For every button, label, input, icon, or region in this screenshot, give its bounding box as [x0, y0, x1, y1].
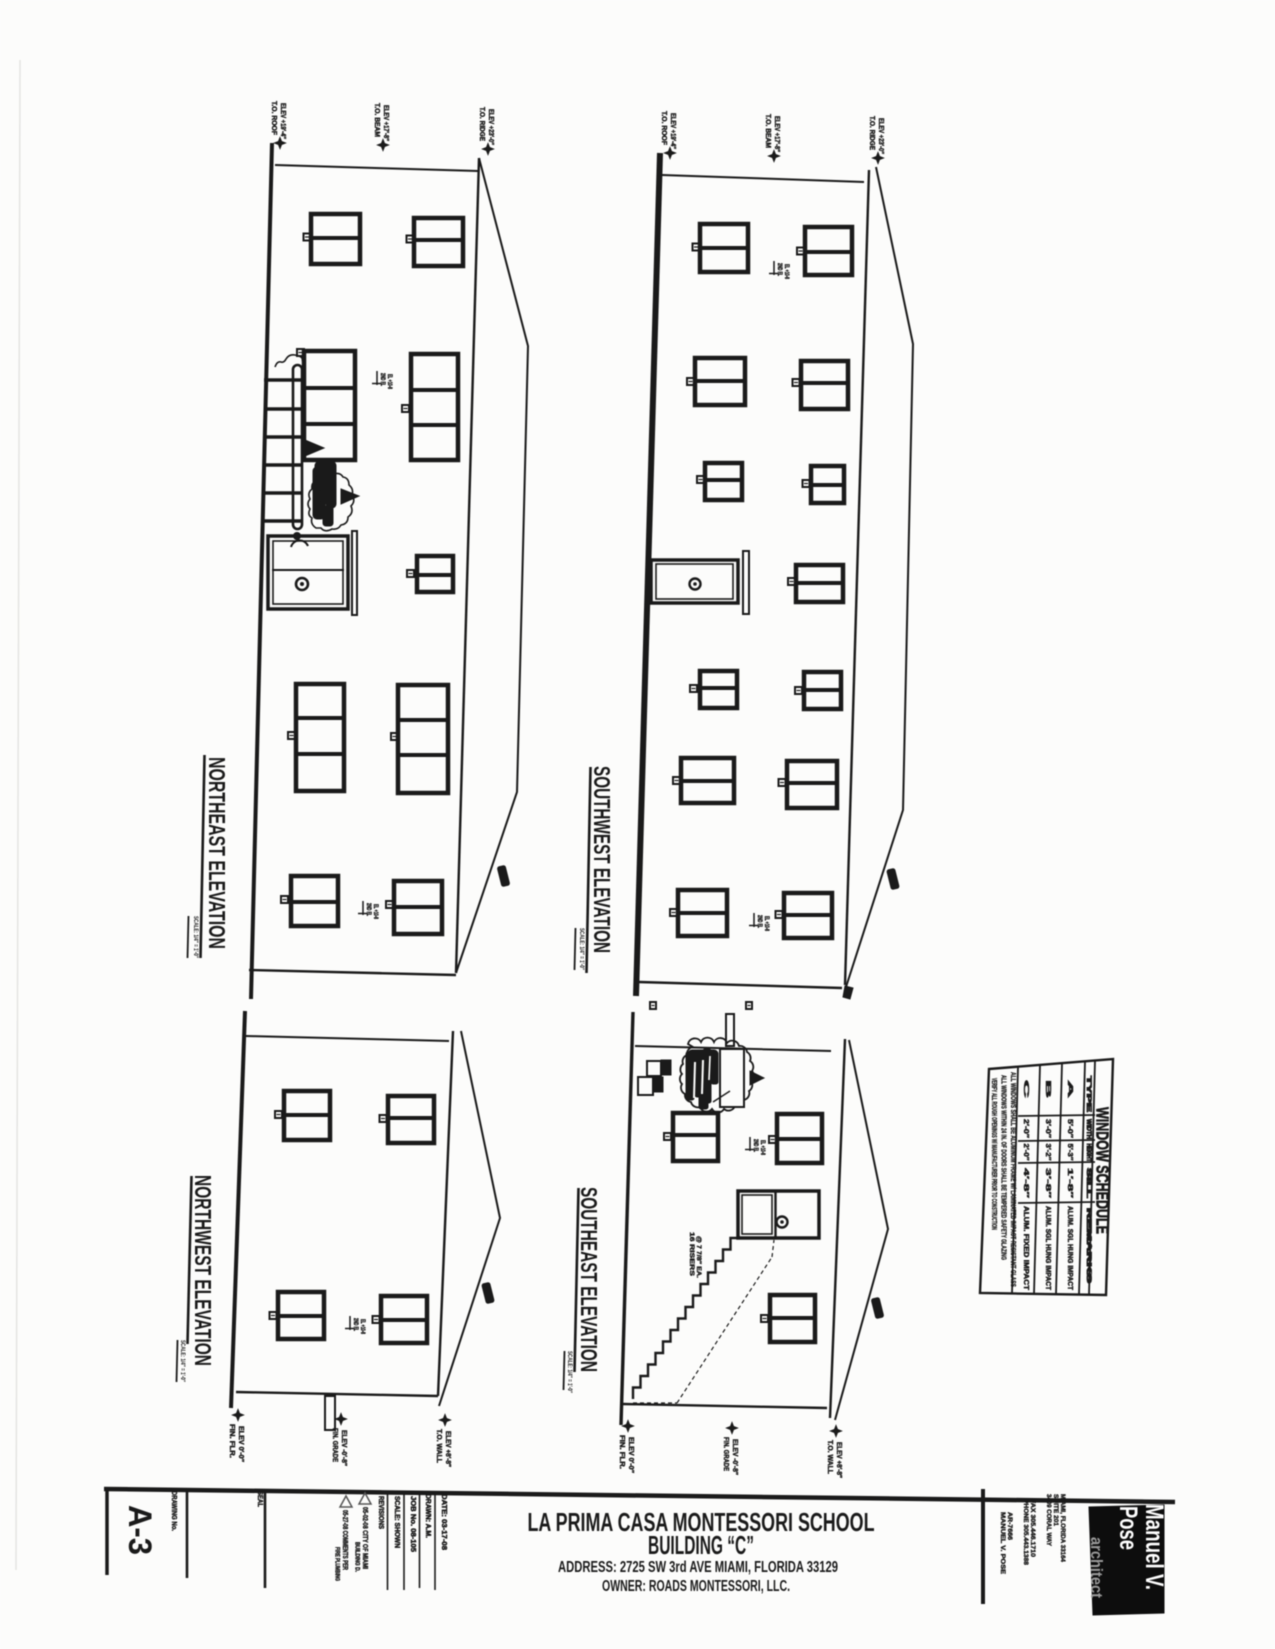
svg-text:MANUEL V. POSE: MANUEL V. POSE [999, 1512, 1006, 1575]
svg-text:05-02-08 CITY OF MIAMI: 05-02-08 CITY OF MIAMI [361, 1507, 368, 1569]
svg-text:AR-7666: AR-7666 [1006, 1512, 1013, 1540]
svg-text:Pose: Pose [1114, 1506, 1142, 1550]
svg-text:3′-8″: 3′-8″ [1044, 1168, 1053, 1199]
svg-text:FIRE PLUMBING: FIRE PLUMBING [334, 1547, 341, 1581]
svg-text:ELEV 0′-0″: ELEV 0′-0″ [237, 1426, 244, 1463]
svg-text:C: C [1022, 1080, 1031, 1100]
svg-text:ALUM. SGL HUNG IMPACT: ALUM. SGL HUNG IMPACT [1066, 1206, 1075, 1290]
svg-text:2ND FL: 2ND FL [752, 1139, 758, 1152]
svg-text:SOUTHWEST ELEVATION: SOUTHWEST ELEVATION [589, 766, 615, 953]
svg-text:EL +10-8: EL +10-8 [372, 904, 378, 919]
svg-text:FIN. GRADE: FIN. GRADE [722, 1437, 729, 1471]
svg-text:T.O. WALL: T.O. WALL [435, 1429, 442, 1464]
svg-text:EL +10-8: EL +10-8 [759, 1140, 765, 1155]
svg-text:EL +10-8: EL +10-8 [359, 1319, 365, 1334]
svg-text:ALUM. FIXED IMPACT: ALUM. FIXED IMPACT [1022, 1206, 1031, 1290]
svg-text:ELEV +8′-8″: ELEV +8′-8″ [835, 1442, 842, 1479]
svg-text:ADDRESS: 2725 SW 3rd AVE MIAM: ADDRESS: 2725 SW 3rd AVE MIAMI, FLORIDA … [558, 1559, 838, 1576]
svg-text:PHONE 305.443.1388: PHONE 305.443.1388 [1022, 1499, 1029, 1565]
svg-text:FAX 305.446.1710: FAX 305.446.1710 [1029, 1499, 1036, 1557]
svg-text:5′-0″: 5′-0″ [1066, 1119, 1075, 1138]
svg-text:BUILDING D.: BUILDING D. [354, 1542, 361, 1572]
svg-text:EL +10-8: EL +10-8 [783, 264, 789, 279]
svg-text:2′-0″: 2′-0″ [1022, 1144, 1031, 1161]
svg-text:FIN. GRADE: FIN. GRADE [331, 1428, 338, 1462]
svg-text:SCALE: 1/4″ = 1′-0″: SCALE: 1/4″ = 1′-0″ [192, 916, 199, 958]
svg-text:SCALE: 1/4″ = 1′-0″: SCALE: 1/4″ = 1′-0″ [578, 928, 585, 970]
svg-text:2ND FL: 2ND FL [365, 903, 371, 916]
svg-text:MIAMI, FLORIDA 33164: MIAMI, FLORIDA 33164 [1059, 1494, 1066, 1562]
svg-text:ELEV 0′-0″: ELEV 0′-0″ [627, 1437, 634, 1474]
svg-text:ALL WINDOWS SHALL BE ALUMINUM: ALL WINDOWS SHALL BE ALUMINUM FRAME W/ L… [1009, 1072, 1018, 1287]
svg-text:2ND FL: 2ND FL [379, 373, 385, 386]
svg-text:ELEV +17′-8″: ELEV +17′-8″ [382, 105, 389, 142]
svg-text:WIDTH: WIDTH [1085, 1119, 1092, 1139]
svg-text:T.O. BEAM: T.O. BEAM [373, 103, 380, 137]
svg-text:B: B [1044, 1080, 1053, 1100]
svg-text:ELEV -0′-8″: ELEV -0′-8″ [340, 1430, 347, 1467]
svg-text:ALL WINDOWS WITHIN 24 IN. OF D: ALL WINDOWS WITHIN 24 IN. OF DOORS SHALL… [1000, 1075, 1009, 1260]
svg-text:SEAL: SEAL [256, 1491, 263, 1508]
svg-text:ELEV +23′-0″: ELEV +23′-0″ [487, 109, 494, 146]
svg-text:3′-2″: 3′-2″ [1044, 1144, 1053, 1161]
svg-text:T.O. ROOF: T.O. ROOF [270, 101, 277, 136]
svg-text:T.O. BEAM: T.O. BEAM [764, 114, 771, 148]
svg-text:ELEV +23′-0″: ELEV +23′-0″ [877, 118, 884, 155]
svg-text:16 RISERS: 16 RISERS [688, 1232, 694, 1276]
svg-text:SOUTHEAST ELEVATION: SOUTHEAST ELEVATION [576, 1187, 602, 1372]
svg-text:REVISIONS: REVISIONS [377, 1496, 384, 1529]
svg-text:2ND FL: 2ND FL [756, 915, 762, 928]
svg-text:3409 CORAL WAY: 3409 CORAL WAY [1045, 1494, 1052, 1547]
svg-text:A: A [1066, 1080, 1075, 1100]
svg-text:1′-8″: 1′-8″ [1066, 1168, 1075, 1199]
svg-text:05-27-08 COMMENTS PER: 05-27-08 COMMENTS PER [341, 1510, 348, 1570]
svg-text:ELEV +19′-4″: ELEV +19′-4″ [669, 113, 676, 150]
svg-text:EL +10-8: EL +10-8 [386, 374, 392, 389]
svg-text:T.O. RIDGE: T.O. RIDGE [478, 107, 485, 141]
svg-text:HEIGHT: HEIGHT [1085, 1144, 1092, 1162]
svg-text:5′-3″: 5′-3″ [1066, 1144, 1075, 1161]
svg-text:T.O. WALL: T.O. WALL [826, 1440, 833, 1475]
svg-text:T.O. ROOF: T.O. ROOF [660, 111, 667, 146]
svg-text:EL +10-8: EL +10-8 [763, 916, 769, 931]
svg-text:ALUM. SGL HUNG IMPACT: ALUM. SGL HUNG IMPACT [1044, 1206, 1053, 1290]
svg-text:2ND FL: 2ND FL [776, 263, 782, 276]
svg-text:NORTHEAST ELEVATION: NORTHEAST ELEVATION [204, 757, 230, 949]
svg-text:JOB No. 08-105: JOB No. 08-105 [409, 1496, 416, 1552]
svg-text:A-3: A-3 [122, 1505, 158, 1555]
svg-text:ELEV +17′-8″: ELEV +17′-8″ [773, 116, 780, 153]
svg-text:4′-8″: 4′-8″ [1022, 1168, 1031, 1199]
svg-text:TYPE: TYPE [1085, 1076, 1092, 1113]
svg-text:VERIFY ALL ROUGH OPENINGS W/ M: VERIFY ALL ROUGH OPENINGS W/ MANUFACTURE… [990, 1078, 999, 1230]
svg-text:SUITE 201: SUITE 201 [1052, 1494, 1059, 1526]
svg-text:DATE: 03-17-08: DATE: 03-17-08 [440, 1494, 447, 1550]
svg-text:3′-0″: 3′-0″ [1044, 1119, 1053, 1138]
svg-text:ELEV -0′-8″: ELEV -0′-8″ [731, 1439, 738, 1476]
svg-text:SCALE: SHOWN: SCALE: SHOWN [393, 1496, 400, 1548]
svg-text:FIN. FLR.: FIN. FLR. [228, 1424, 235, 1458]
svg-text:SCALE: 1/4″ = 1′-0″: SCALE: 1/4″ = 1′-0″ [566, 1351, 573, 1393]
svg-text:Manuel V.: Manuel V. [1140, 1504, 1168, 1590]
svg-text:SCALE: 1/4″ = 1′-0″: SCALE: 1/4″ = 1′-0″ [179, 1340, 186, 1382]
svg-text:T.O. RIDGE: T.O. RIDGE [868, 116, 875, 150]
svg-text:architect: architect [1087, 1537, 1106, 1598]
svg-text:NORTHWEST ELEVATION: NORTHWEST ELEVATION [190, 1175, 216, 1366]
svg-text:2′-0″: 2′-0″ [1022, 1119, 1031, 1138]
svg-text:ELEV +19′-4″: ELEV +19′-4″ [279, 103, 286, 140]
svg-text:FIN. FLR.: FIN. FLR. [618, 1435, 625, 1469]
svg-text:OWNER: ROADS MONTESSORI, LLC.: OWNER: ROADS MONTESSORI, LLC. [602, 1578, 790, 1595]
svg-text:BUILDING “C”: BUILDING “C” [648, 1530, 754, 1560]
svg-text:@ 7 7/8″ EA.: @ 7 7/8″ EA. [695, 1236, 701, 1278]
svg-text:WINDOW SCHEDULE: WINDOW SCHEDULE [1093, 1107, 1113, 1234]
svg-text:REMARKS: REMARKS [1085, 1208, 1092, 1284]
svg-text:2ND FL: 2ND FL [352, 1318, 358, 1331]
svg-text:ELEV +8′-8″: ELEV +8′-8″ [444, 1431, 451, 1468]
svg-text:DRAWN: A.M.: DRAWN: A.M. [424, 1494, 431, 1538]
svg-text:SILL: SILL [1085, 1168, 1092, 1198]
svg-text:DRAWING No.: DRAWING No. [170, 1491, 177, 1531]
